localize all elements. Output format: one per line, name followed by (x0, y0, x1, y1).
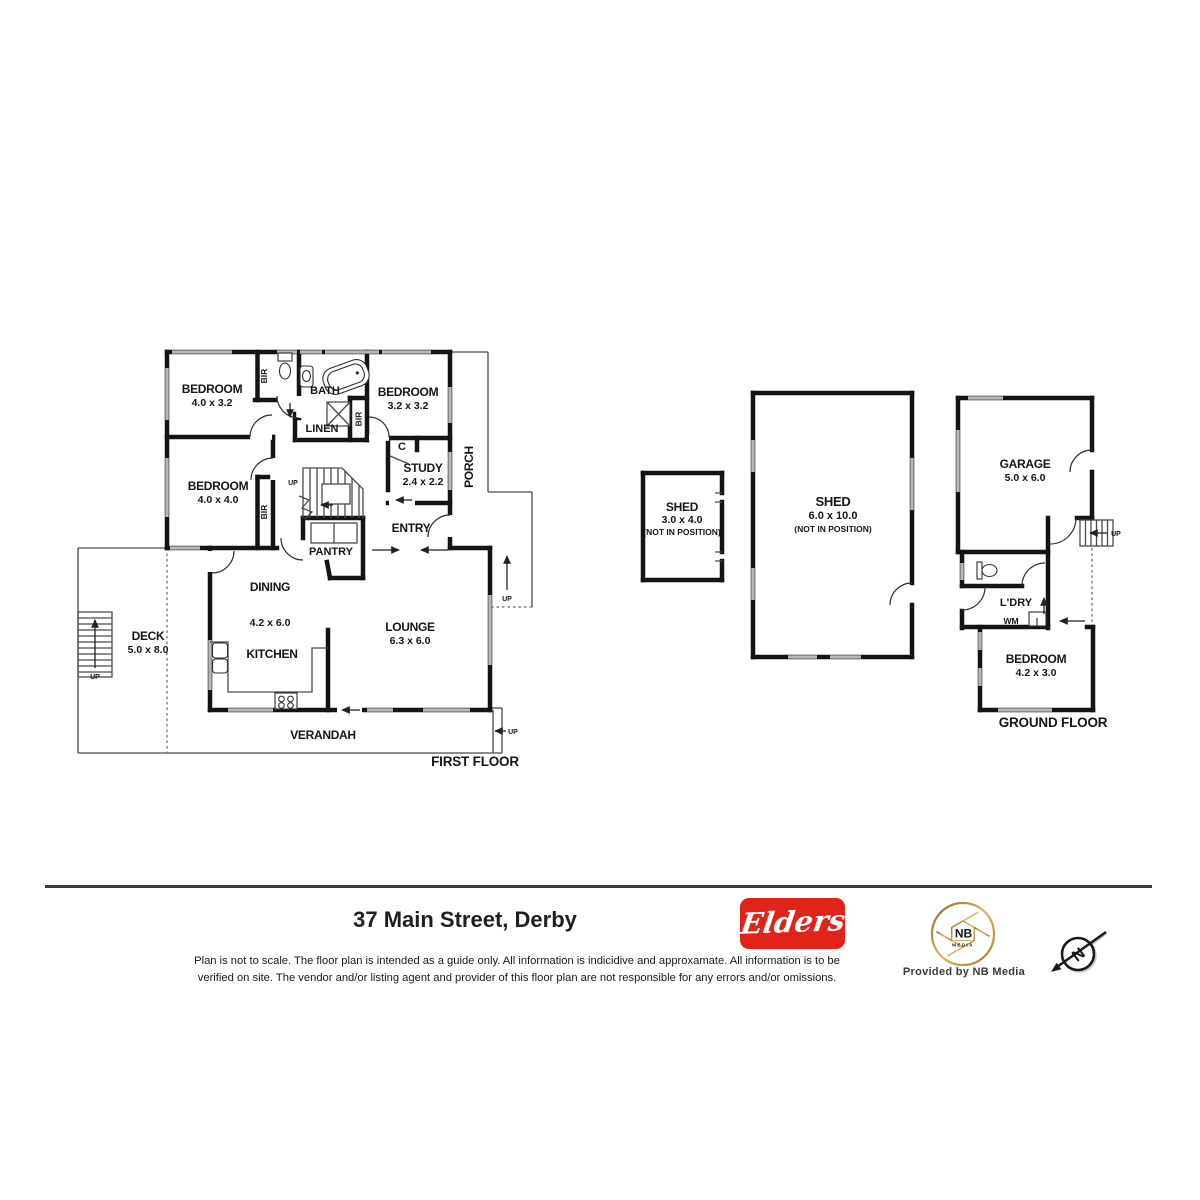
dashed-lines (167, 548, 1092, 753)
room-label-bedroom-2: BEDROOM (378, 385, 439, 399)
up-label-stairs: UP (288, 480, 298, 487)
elders-logo-text: Elders (738, 903, 847, 944)
room-label-cupboard: C (398, 441, 406, 453)
room-label-deck: DECK (132, 629, 165, 643)
cupboard-door-line (390, 456, 409, 464)
shed-labels: SHED 3.0 x 4.0 (NOT IN POSITION) SHED 6.… (643, 494, 872, 537)
ground-floor-labels: GARAGE 5.0 x 6.0 L'DRY WM BEDROOM 4.2 x … (999, 457, 1121, 730)
shed-large-name: SHED (816, 494, 851, 509)
room-label-kitchen: KITCHEN (246, 647, 297, 661)
disclaimer-text: Plan is not to scale. The floor plan is … (172, 953, 862, 987)
room-label-entry: ENTRY (392, 521, 431, 535)
room-label-bedroom-1: BEDROOM (182, 382, 243, 396)
room-dims-dining: 4.2 x 6.0 (250, 617, 291, 629)
room-dims-bedroom-1: 4.0 x 3.2 (192, 397, 233, 409)
shed-large-dims: 6.0 x 10.0 (809, 510, 858, 522)
room-dims-bedroom-gf: 4.2 x 3.0 (1016, 667, 1057, 679)
bir-label-2: BIR (354, 412, 364, 427)
toilet-icon-gf (982, 565, 997, 577)
toilet-cistern (278, 353, 292, 361)
up-label-deck: UP (90, 674, 100, 681)
label-wm: WM (1003, 616, 1018, 626)
sink-icon (213, 643, 228, 658)
provided-by-text: Provided by NB Media (886, 966, 1042, 978)
shed-large-note: (NOT IN POSITION) (794, 524, 872, 534)
room-label-linen: LINEN (306, 423, 339, 435)
up-label-verandah: UP (508, 729, 518, 736)
room-dims-bedroom-2: 3.2 x 3.2 (388, 400, 429, 412)
elders-logo: Elders (740, 898, 845, 949)
room-label-verandah: VERANDAH (290, 728, 356, 742)
disclaimer-line-1: Plan is not to scale. The floor plan is … (172, 953, 862, 970)
first-floor-arrows (95, 403, 507, 731)
shed-small-dims: 3.0 x 4.0 (662, 514, 703, 526)
room-label-porch: PORCH (462, 446, 476, 488)
floor-plan-drawing: BEDROOM 4.0 x 3.2 BEDROOM 3.2 x 3.2 BEDR… (0, 0, 1200, 880)
first-floor-title: FIRST FLOOR (431, 754, 519, 769)
toilet-cistern-gf (977, 562, 982, 579)
ground-floor-title: GROUND FLOOR (999, 715, 1108, 730)
north-compass-icon: N (1040, 920, 1116, 986)
toilet-icon (280, 363, 291, 379)
disclaimer-line-2: verified on site. The vendor and/or list… (172, 970, 862, 987)
stove-icon (275, 693, 297, 709)
room-label-bedroom-3: BEDROOM (188, 479, 249, 493)
room-dims-deck: 5.0 x 8.0 (128, 644, 169, 656)
nb-logo-initials: NB (955, 927, 973, 941)
room-label-study: STUDY (403, 461, 442, 475)
bir-label-1: BIR (259, 369, 269, 384)
room-dims-lounge: 6.3 x 6.0 (390, 635, 431, 647)
nb-media-logo-icon: NB MEDIA (925, 896, 1001, 972)
room-label-bedroom-gf: BEDROOM (1006, 652, 1067, 666)
property-address: 37 Main Street, Derby (165, 907, 765, 933)
room-dims-garage: 5.0 x 6.0 (1005, 472, 1046, 484)
room-label-pantry: PANTRY (309, 546, 354, 558)
shed-small-name: SHED (666, 500, 699, 514)
nb-media-logo: NB MEDIA (925, 896, 1001, 972)
footer-divider (45, 885, 1152, 888)
up-label-porch: UP (502, 596, 512, 603)
room-label-lounge: LOUNGE (385, 620, 435, 634)
room-label-bath: BATH (310, 385, 340, 397)
shed-door-arc (890, 583, 912, 605)
room-label-dining: DINING (250, 580, 290, 594)
room-dims-bedroom-3: 4.0 x 4.0 (198, 494, 239, 506)
up-label-gf-stairs: UP (1111, 531, 1121, 538)
nb-logo-media: MEDIA (952, 943, 974, 948)
bir-label-3: BIR (259, 505, 269, 520)
deck-verandah-porch-outline (78, 352, 532, 753)
room-label-garage: GARAGE (1000, 457, 1051, 471)
room-dims-study: 2.4 x 2.2 (403, 476, 444, 488)
room-label-laundry: L'DRY (1000, 597, 1033, 609)
first-floor-staircase (299, 468, 363, 519)
shed-windows (751, 440, 913, 659)
floor-plan-page: BEDROOM 4.0 x 3.2 BEDROOM 3.2 x 3.2 BEDR… (0, 0, 1200, 1200)
shed-small-note: (NOT IN POSITION) (643, 527, 721, 537)
